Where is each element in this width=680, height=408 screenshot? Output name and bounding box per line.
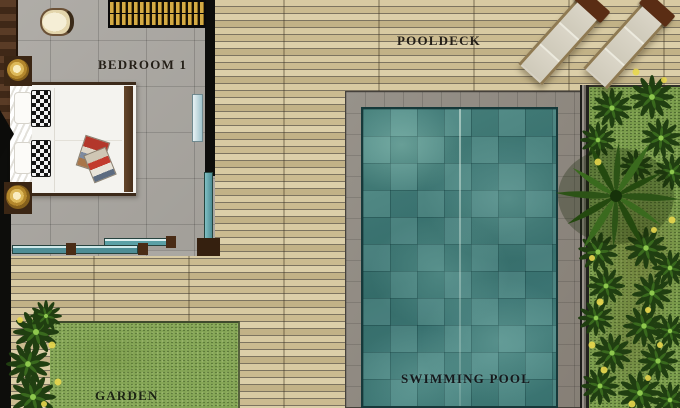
wardrobe [108, 0, 206, 28]
gold-lamp-icon [6, 185, 30, 209]
door-frame [166, 236, 176, 248]
sliding-glass-door [12, 245, 68, 254]
garden-strip-east [589, 85, 680, 408]
window-pane [192, 94, 203, 142]
pillow [14, 142, 32, 174]
glass-door-east [204, 172, 213, 246]
corner-plant-icon [0, 110, 14, 158]
pillow [14, 92, 32, 124]
bed-foot-bench [124, 86, 133, 192]
bedroom-label: BEDROOM 1 [98, 57, 187, 73]
checkered-pillow [31, 140, 51, 177]
wardrobe-rail [110, 14, 204, 25]
checkered-pillow [31, 90, 51, 127]
pooldeck-label: POOLDECK [397, 33, 481, 49]
pool-east-wall [580, 85, 589, 408]
pool-centerline [459, 109, 461, 406]
garden-label: GARDEN [95, 388, 159, 404]
swimming-pool-label: SWIMMING POOL [401, 371, 531, 387]
armchair [40, 8, 74, 36]
gold-lamp-icon [7, 59, 29, 81]
wardrobe-rail [110, 2, 204, 13]
swimming-pool-water [361, 107, 558, 408]
sliding-glass-door [74, 245, 138, 254]
door-frame [66, 243, 76, 255]
door-frame [138, 243, 148, 255]
bedroom-right-wall [205, 0, 215, 176]
wall-corner-post [197, 238, 220, 256]
villa-floor-plan: BEDROOM 1 POOLDECK SWIMMING POOL GARDEN [0, 0, 680, 408]
